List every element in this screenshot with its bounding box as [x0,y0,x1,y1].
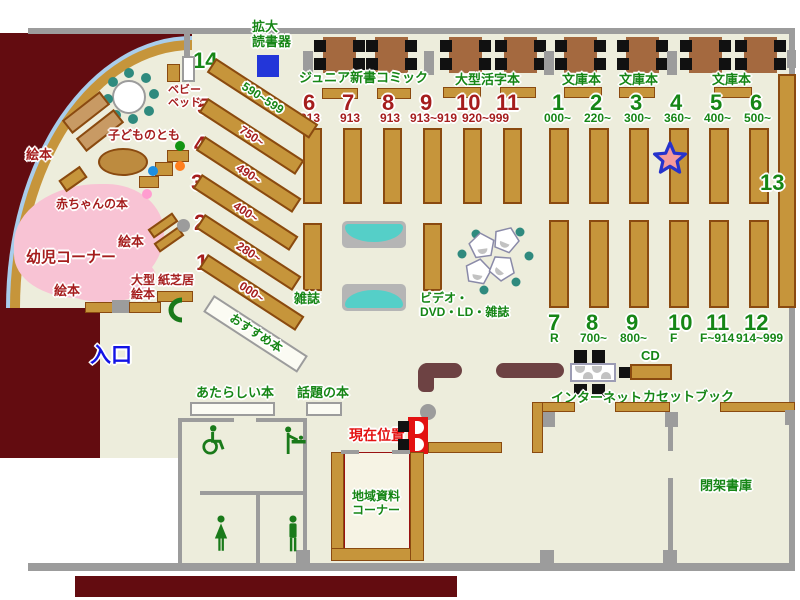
service-counter [496,363,564,378]
cd-shelf [630,364,672,380]
study-carrels [454,226,534,296]
chair [594,58,606,70]
shelf-range: 913 [380,112,400,126]
pillar [663,550,677,564]
local-corner-shelf [331,452,344,561]
marker-shape [415,421,424,434]
shelf-range: 300~ [624,112,651,126]
large-ehon-label: 大型 絵本 [131,274,155,302]
topical-books-shelf [306,402,342,416]
chair [405,40,417,52]
new-books-label: あたらしい本 [196,386,274,401]
chair [735,58,747,70]
chair [440,40,452,52]
kids-chair [144,106,154,116]
seat [583,372,593,379]
entrance-label: 入口 [90,344,132,368]
video-label: ビデオ・ DVD・LD・雑誌 [420,292,509,320]
shelf-range: 700~ [580,332,607,346]
chair [314,58,326,70]
pillar [665,412,678,427]
kids-chair [124,68,134,78]
shelf-range-shared: 920~999 [462,112,509,126]
bookshelf-column [343,128,362,204]
bookshelf-column [589,128,609,204]
kids-oval-table [98,148,148,176]
reading-table [744,37,777,73]
shelf-range: F~914 [700,332,734,346]
shelf-row [615,402,670,412]
chair [735,40,747,52]
bookshelf-column [503,128,522,204]
kids-door [112,300,130,313]
baby-bed-chair [167,64,180,82]
kids-round-table [112,80,146,114]
chair [366,40,378,52]
woman-icon [212,515,230,553]
shelf-range: F [670,332,677,346]
magazine-shelf [303,223,322,291]
chair [617,58,629,70]
chair [555,58,567,70]
kids-chair [128,114,138,124]
chair [353,58,365,70]
chair [314,40,326,52]
video-shelf [423,223,442,291]
sofa-cushion [345,224,403,242]
reading-table [449,37,482,73]
chair [495,58,507,70]
baby-care-icon [280,424,308,456]
magnifier-label: 拡大 読書器 [252,20,291,50]
library-floor-map: 拡大 読書器 ジュニア新書 コミック 大型活字本 文庫本 文庫本 文庫本 6 9… [0,0,800,600]
bookshelf-column [629,128,649,204]
chair [353,40,365,52]
internet-table [570,363,616,382]
bookshelf-column [303,128,322,204]
chair [574,350,587,363]
wall-restroom [256,418,303,422]
magazine-label: 雑誌 [294,292,320,307]
service-counter [418,363,434,392]
baby-bed [182,56,195,82]
bookshelf-column [709,128,729,204]
shelf-range: 913~919 [410,112,457,126]
cd-label: CD [641,349,660,364]
chair [479,40,491,52]
current-location-marker [408,417,428,454]
chair [440,58,452,70]
shelf-range: 000~ [544,112,571,126]
bookshelf-column [383,128,402,204]
shelf-range: 220~ [584,112,611,126]
bookshelf-column [669,220,689,308]
bookshelf-column [629,220,649,308]
wall-restroom [178,418,234,422]
local-corner-label: 地域資料 コーナー [352,490,400,518]
new-books-shelf [190,402,275,416]
pillar [544,51,554,75]
kamishibai-label: 紙芝居 [158,274,194,288]
sofa-cushion [345,290,403,308]
ehon-label-mid: 絵本 [118,235,144,250]
large-print-label: 大型活字本 [455,73,520,88]
wheelchair-icon [197,424,227,456]
bookshelf-column [709,220,729,308]
sofa [342,284,406,311]
reading-table [689,37,722,73]
chair [774,58,786,70]
kids-boundary-shelf [85,302,113,313]
chair [495,40,507,52]
bookshelf-column [749,220,769,308]
shelf-range: 913 [340,112,360,126]
kids-chair [149,89,159,99]
seat [601,372,611,379]
chair [398,439,409,450]
shelf-range: 800~ [620,332,647,346]
reading-table [564,37,597,73]
shelf-range: 360~ [664,112,691,126]
shelf-range: 914~999 [736,332,783,346]
chair [594,40,606,52]
shelf-row [720,402,795,412]
shelf-range: 400~ [704,112,731,126]
stool-blue [148,166,158,176]
bookshelf-column [423,128,442,204]
pillar [667,51,677,75]
man-icon [284,515,302,553]
bookshelf-column [463,128,482,204]
ehon-label-bottom: 絵本 [54,284,80,299]
seat [575,366,585,373]
seat [592,366,602,373]
chair [479,58,491,70]
reading-table [375,37,408,73]
shelf-range: R [550,332,559,346]
chair [774,40,786,52]
chair [619,367,630,378]
chair [680,58,692,70]
shelf-range: 500~ [744,112,771,126]
toddler-corner-label: 幼児コーナー [26,249,116,266]
shelf-number-13: 13 [760,170,784,195]
star-marker-icon [652,140,688,176]
chair [555,40,567,52]
outside-strip-bottom [75,576,457,597]
wall-closed-stacks [668,427,673,451]
junior-shinsho-label: ジュニア新書 [299,71,376,86]
chair [366,58,378,70]
reading-table [504,37,537,73]
chair [719,58,731,70]
shelf-row [428,442,502,453]
kids-chair [141,73,151,83]
stool-pink [142,189,152,199]
sofa [342,221,406,248]
current-location-label: 現在位置 [349,427,405,443]
wall-restroom [178,418,182,568]
magnifier-device-icon [257,55,279,77]
wall-restroom [256,495,260,565]
wall-restroom [200,491,304,495]
pillar-round [177,219,190,232]
ehon-label-left: 絵本 [26,148,52,163]
chair [617,40,629,52]
wall-top [28,28,795,34]
kids-step-shelf [139,176,159,188]
pillar [785,410,795,425]
bunko-label-1: 文庫本 [562,73,601,88]
baby-bed-label: ベビー ベッド [168,84,201,109]
wall-stub [392,450,410,454]
kids-boundary-shelf [129,302,161,313]
chair [680,40,692,52]
bookshelf-column [549,128,569,204]
wall-stub [341,450,359,454]
pillar [540,550,554,564]
kids-chair [108,77,118,87]
wall-bottom [28,563,795,571]
chair [398,421,409,432]
reading-table [323,37,356,73]
bunko-label-2: 文庫本 [619,73,658,88]
marker-shape [415,438,424,451]
local-corner-shelf [410,452,424,561]
closed-stacks-label: 閉架書庫 [700,479,752,494]
bookshelf-column [549,220,569,308]
kodomo-no-tomo-label: 子どものとも [108,129,180,143]
chair [719,40,731,52]
baby-books-label: 赤ちゃんの本 [56,198,128,212]
bunko-label-3: 文庫本 [712,73,751,88]
door-arc-icon [164,296,186,324]
chair [592,350,605,363]
pillar [787,50,796,68]
stool-orange [175,161,185,171]
topical-books-label: 話題の本 [297,386,349,401]
shelf-row [532,402,543,453]
pillar [543,412,555,427]
reading-table [626,37,659,73]
chair [405,58,417,70]
comic-label: コミック [376,71,428,86]
bookshelf-column [589,220,609,308]
